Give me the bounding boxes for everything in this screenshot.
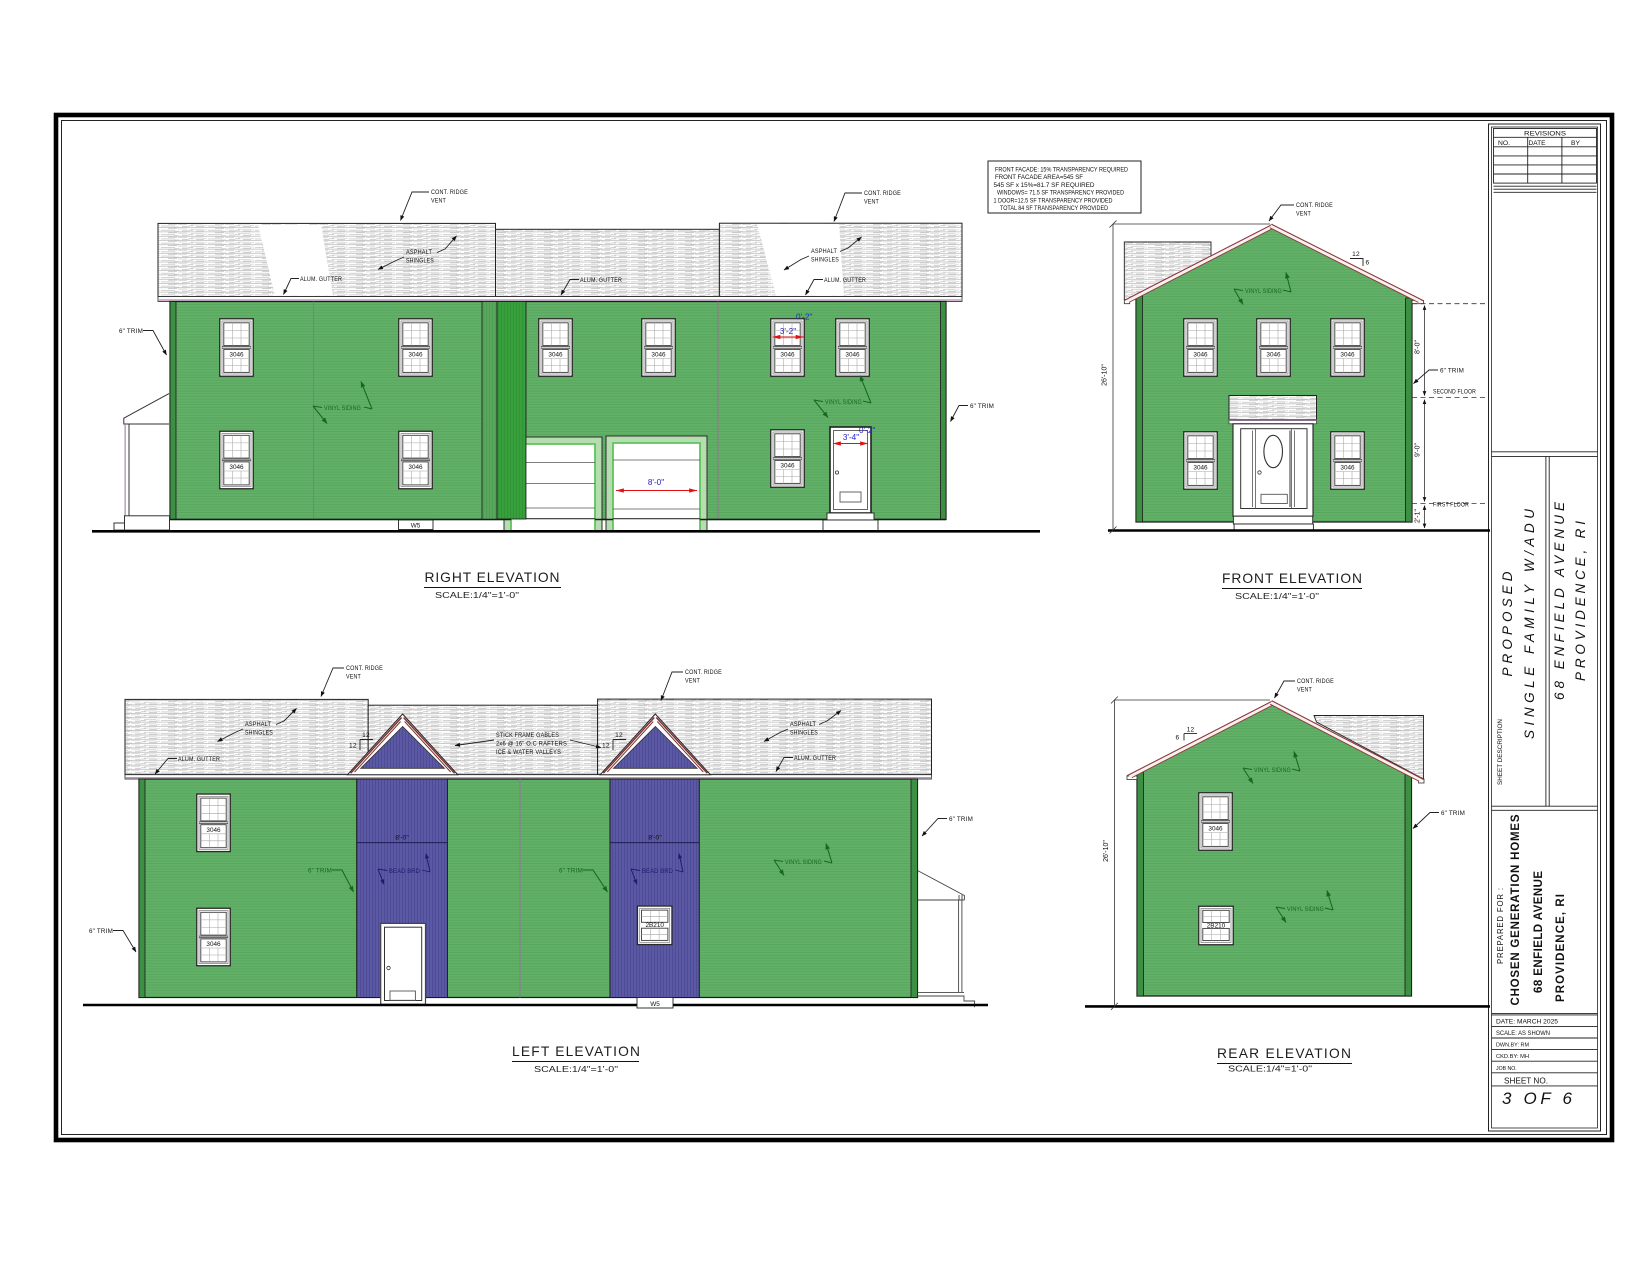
- svg-text:VINYL SIDING: VINYL SIDING: [1254, 767, 1291, 774]
- svg-text:ASPHALT: ASPHALT: [406, 249, 432, 256]
- svg-text:DWN.BY: RM: DWN.BY: RM: [1496, 1043, 1530, 1049]
- svg-text:2x6 @ 16" O.C RAFTERS: 2x6 @ 16" O.C RAFTERS: [496, 741, 567, 748]
- svg-text:0'-2": 0'-2": [859, 426, 875, 435]
- svg-text:12: 12: [1187, 727, 1195, 734]
- svg-text:BEAD BRD: BEAD BRD: [642, 868, 673, 875]
- svg-text:ALUM. GUTTER: ALUM. GUTTER: [794, 755, 836, 762]
- svg-text:VENT: VENT: [864, 199, 879, 206]
- svg-text:STICK FRAME GABLES: STICK FRAME GABLES: [496, 732, 559, 739]
- svg-text:6" TRIM: 6" TRIM: [89, 928, 113, 935]
- svg-text:W5: W5: [411, 523, 421, 530]
- svg-text:SCALE:1/4"=1'-0": SCALE:1/4"=1'-0": [1235, 592, 1319, 601]
- svg-text:6" TRIM: 6" TRIM: [1441, 810, 1465, 817]
- svg-text:1 DOOR=12.5 SF TRANSPARENCY PR: 1 DOOR=12.5 SF TRANSPARENCY PROVIDED: [994, 197, 1113, 204]
- svg-text:6" TRIM: 6" TRIM: [559, 868, 583, 875]
- svg-text:6" TRIM: 6" TRIM: [1440, 368, 1464, 375]
- svg-text:FRONT FACADE AREA=545 SF: FRONT FACADE AREA=545 SF: [995, 174, 1083, 181]
- svg-text:545 SF x 15%=81.7 SF REQUIRED: 545 SF x 15%=81.7 SF REQUIRED: [994, 182, 1096, 189]
- svg-text:CKD.BY: MH: CKD.BY: MH: [1496, 1054, 1529, 1060]
- svg-text:CONT. RIDGE: CONT. RIDGE: [1296, 202, 1333, 209]
- svg-text:8'-0": 8'-0": [1415, 340, 1422, 354]
- svg-text:DATE: DATE: [1529, 140, 1546, 147]
- svg-text:SCALE: AS SHOWN: SCALE: AS SHOWN: [1496, 1031, 1550, 1037]
- svg-text:6" TRIM: 6" TRIM: [308, 868, 332, 875]
- svg-text:PROVIDENCE, RI: PROVIDENCE, RI: [1555, 894, 1567, 1002]
- svg-text:ALUM. GUTTER: ALUM. GUTTER: [300, 276, 342, 283]
- svg-text:9'-0": 9'-0": [1415, 443, 1422, 457]
- svg-text:8'-0": 8'-0": [395, 835, 409, 842]
- svg-text:2'-1": 2'-1": [1415, 509, 1422, 523]
- svg-text:ASPHALT: ASPHALT: [245, 721, 271, 728]
- svg-text:VENT: VENT: [1296, 211, 1311, 218]
- svg-text:SHEET NO.: SHEET NO.: [1504, 1076, 1548, 1086]
- svg-text:RIGHT ELEVATION: RIGHT ELEVATION: [425, 570, 560, 585]
- svg-text:NO.: NO.: [1498, 140, 1510, 147]
- svg-text:VINYL SIDING: VINYL SIDING: [1245, 288, 1282, 295]
- svg-text:6: 6: [1366, 260, 1370, 267]
- svg-text:CONT. RIDGE: CONT. RIDGE: [431, 189, 468, 196]
- svg-text:SCALE:1/4"=1'-0": SCALE:1/4"=1'-0": [1228, 1065, 1312, 1074]
- svg-text:ALUM. GUTTER: ALUM. GUTTER: [824, 277, 866, 284]
- svg-text:0'-2": 0'-2": [796, 313, 812, 322]
- svg-text:VENT: VENT: [431, 198, 446, 205]
- svg-text:VINYL SIDING: VINYL SIDING: [324, 405, 361, 412]
- svg-text:3'-4": 3'-4": [843, 433, 859, 442]
- svg-text:12: 12: [1352, 251, 1360, 258]
- svg-text:ALUM. GUTTER: ALUM. GUTTER: [178, 756, 220, 763]
- svg-text:FRONT ELEVATION: FRONT ELEVATION: [1222, 571, 1362, 586]
- svg-text:SECOND FLOOR: SECOND FLOOR: [1433, 389, 1476, 396]
- svg-text:6" TRIM: 6" TRIM: [119, 328, 143, 335]
- svg-text:SCALE:1/4"=1'-0": SCALE:1/4"=1'-0": [534, 1065, 618, 1074]
- svg-text:SHINGLES: SHINGLES: [811, 257, 839, 264]
- svg-text:CHOSEN GENERATION HOMES: CHOSEN GENERATION HOMES: [1510, 814, 1522, 1005]
- svg-text:VINYL SIDING: VINYL SIDING: [1287, 906, 1324, 913]
- svg-text:3'-2": 3'-2": [780, 327, 796, 336]
- svg-text:LEFT ELEVATION: LEFT ELEVATION: [512, 1044, 640, 1059]
- svg-text:68 ENFIELD AVENUE: 68 ENFIELD AVENUE: [1533, 871, 1545, 993]
- svg-text:ICE & WATER VALLEYS: ICE & WATER VALLEYS: [496, 749, 561, 756]
- svg-text:26'-10": 26'-10": [1103, 840, 1110, 862]
- svg-text:SHINGLES: SHINGLES: [245, 730, 273, 737]
- svg-text:8'-0": 8'-0": [648, 478, 664, 487]
- svg-text:REVISIONS: REVISIONS: [1524, 131, 1567, 138]
- svg-text:TOTAL 84 SF TRANSPARENCY PROVI: TOTAL 84 SF TRANSPARENCY PROVIDED: [1000, 205, 1108, 212]
- svg-text:PREPARED FOR :: PREPARED FOR :: [1496, 888, 1505, 964]
- svg-text:12: 12: [615, 732, 623, 739]
- svg-text:SHEET DESCRIPTION: SHEET DESCRIPTION: [1497, 719, 1504, 785]
- svg-text:SCALE:1/4"=1'-0": SCALE:1/4"=1'-0": [435, 591, 519, 600]
- svg-text:CONT. RIDGE: CONT. RIDGE: [346, 665, 383, 672]
- svg-text:CONT. RIDGE: CONT. RIDGE: [864, 190, 901, 197]
- svg-text:CONT. RIDGE: CONT. RIDGE: [685, 669, 722, 676]
- svg-text:JOB NO.: JOB NO.: [1496, 1066, 1517, 1072]
- svg-text:8'-0": 8'-0": [648, 835, 662, 842]
- svg-text:12: 12: [362, 732, 370, 739]
- svg-text:VINYL SIDING: VINYL SIDING: [785, 859, 822, 866]
- svg-text:6" TRIM: 6" TRIM: [970, 403, 994, 410]
- svg-text:DATE: MARCH 2025: DATE: MARCH 2025: [1496, 1019, 1558, 1026]
- svg-text:VENT: VENT: [685, 678, 700, 685]
- svg-text:BY: BY: [1571, 140, 1580, 147]
- svg-text:VINYL SIDING: VINYL SIDING: [825, 399, 862, 406]
- svg-text:SHINGLES: SHINGLES: [790, 730, 818, 737]
- svg-text:ASPHALT: ASPHALT: [790, 721, 816, 728]
- svg-text:VENT: VENT: [1297, 687, 1312, 694]
- svg-text:6" TRIM: 6" TRIM: [949, 816, 973, 823]
- svg-text:WINDOWS= 71.5 SF TRANSPARENCY: WINDOWS= 71.5 SF TRANSPARENCY PROVIDED: [997, 190, 1124, 197]
- svg-text:26'-10": 26'-10": [1102, 364, 1109, 386]
- svg-text:FRONT FACADE: 15% TRANSPARENCY: FRONT FACADE: 15% TRANSPARENCY REQUIRED: [995, 167, 1128, 174]
- svg-text:W5: W5: [650, 1001, 660, 1008]
- svg-text:REAR ELEVATION: REAR ELEVATION: [1217, 1046, 1351, 1061]
- svg-text:12: 12: [602, 743, 610, 750]
- svg-text:ALUM. GUTTER: ALUM. GUTTER: [580, 277, 622, 284]
- svg-text:6: 6: [1176, 735, 1180, 742]
- svg-text:BEAD BRD: BEAD BRD: [389, 868, 420, 875]
- svg-text:12: 12: [349, 743, 357, 750]
- svg-text:CONT. RIDGE: CONT. RIDGE: [1297, 678, 1334, 685]
- svg-text:SHINGLES: SHINGLES: [406, 258, 434, 265]
- svg-text:FIRST FLOOR: FIRST FLOOR: [1433, 502, 1469, 509]
- svg-text:ASPHALT: ASPHALT: [811, 248, 837, 255]
- svg-text:VENT: VENT: [346, 674, 361, 681]
